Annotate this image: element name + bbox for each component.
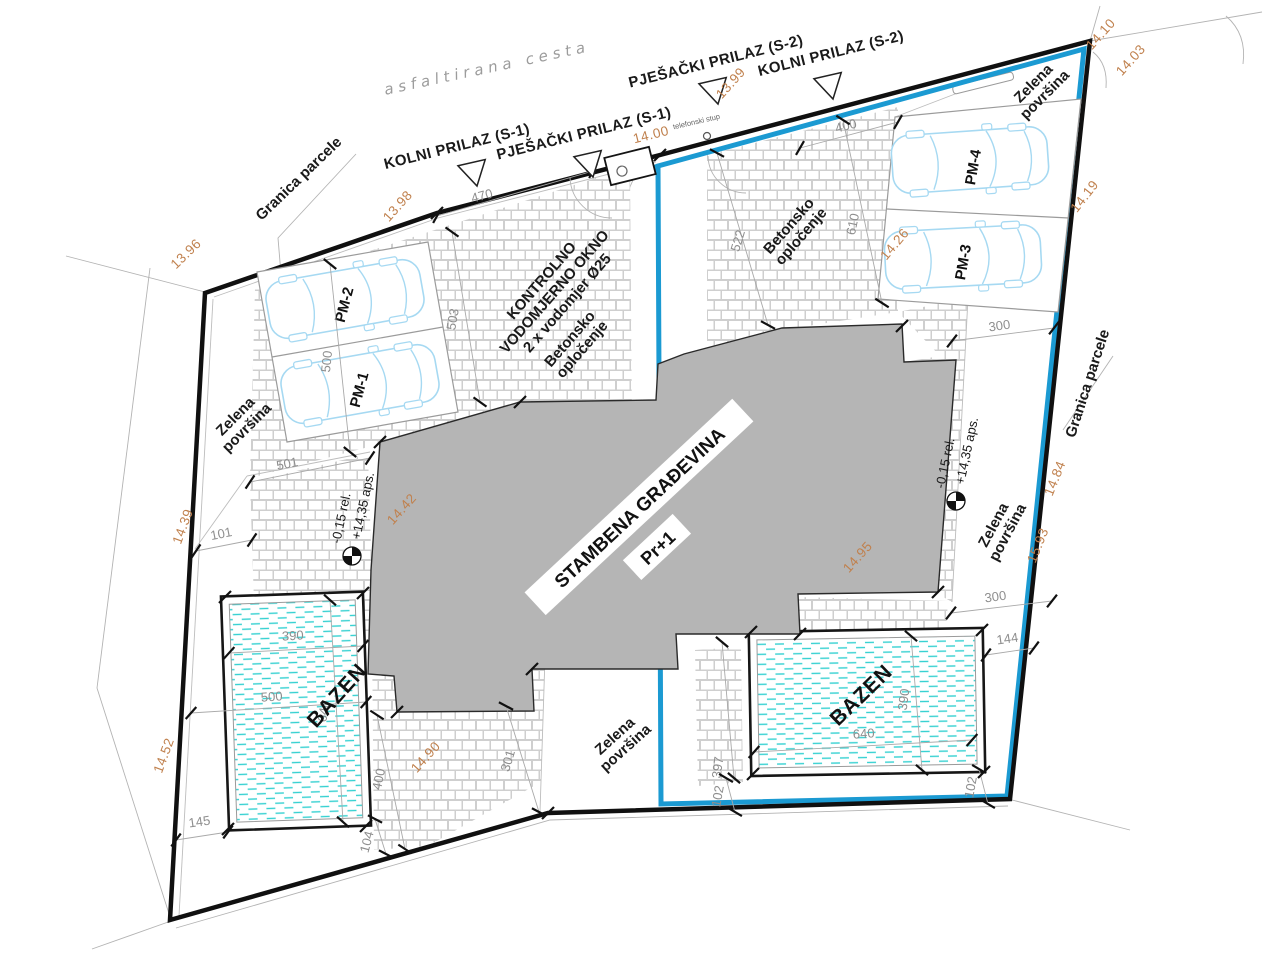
site-plan-svg: telefonski stup PM-2 PM-1 PM-4 PM-3 470 … [0, 0, 1280, 956]
svg-text:300: 300 [988, 317, 1012, 335]
telephone-pole-icon [704, 133, 711, 140]
svg-text:390: 390 [895, 688, 913, 711]
svg-text:500: 500 [260, 688, 283, 704]
svg-text:640: 640 [852, 725, 875, 741]
parking-right: PM-4 PM-3 [878, 99, 1081, 312]
svg-text:390: 390 [282, 627, 304, 643]
svg-text:145: 145 [188, 813, 212, 831]
svg-text:144: 144 [996, 630, 1020, 648]
site-plan-drawing: telefonski stup PM-2 PM-1 PM-4 PM-3 470 … [0, 0, 1280, 956]
svg-text:300: 300 [984, 588, 1008, 606]
parking-left: PM-2 PM-1 [257, 242, 458, 442]
svg-text:500: 500 [318, 350, 335, 373]
